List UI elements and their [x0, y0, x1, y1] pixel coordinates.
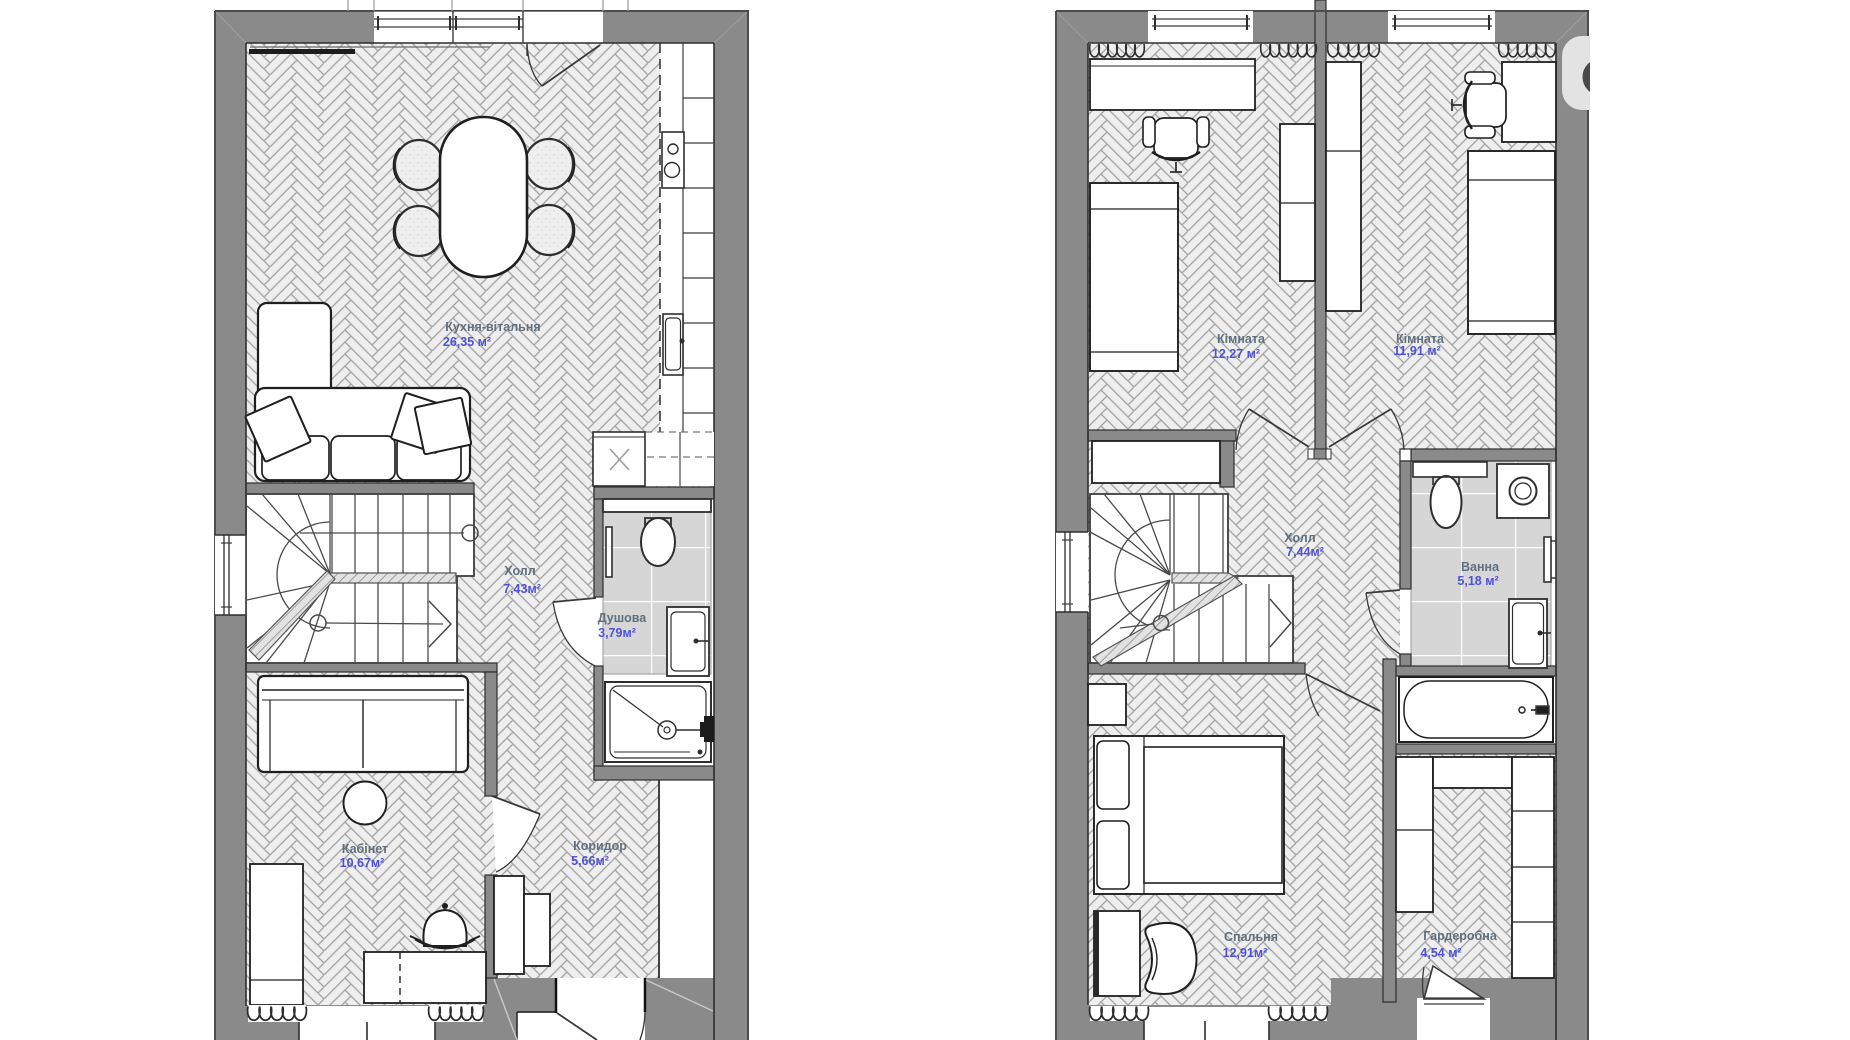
svg-text:Душова: Душова [598, 611, 648, 625]
svg-text:7,43м²: 7,43м² [503, 582, 541, 596]
svg-text:5,18 м²: 5,18 м² [1457, 574, 1498, 588]
svg-text:Гардеробна: Гардеробна [1423, 929, 1498, 943]
svg-text:5,66м²: 5,66м² [571, 854, 609, 868]
svg-text:Холл: Холл [1284, 531, 1315, 545]
svg-text:11,91 м²: 11,91 м² [1393, 344, 1440, 358]
svg-text:Кабінет: Кабінет [342, 842, 388, 856]
svg-text:26,35 м²: 26,35 м² [443, 335, 491, 349]
svg-text:12,27 м²: 12,27 м² [1212, 347, 1260, 361]
svg-text:10,67м²: 10,67м² [340, 856, 385, 870]
svg-text:Спальня: Спальня [1224, 930, 1278, 944]
svg-text:3,79м²: 3,79м² [598, 626, 636, 640]
svg-text:4,54 м²: 4,54 м² [1420, 946, 1461, 960]
svg-text:Кімната: Кімната [1217, 332, 1266, 346]
svg-text:Коридор: Коридор [573, 839, 627, 853]
svg-text:Ванна: Ванна [1461, 560, 1500, 574]
svg-text:7,44м²: 7,44м² [1286, 545, 1324, 559]
svg-text:Кухня-вітальня: Кухня-вітальня [445, 320, 540, 334]
svg-text:12,91м²: 12,91м² [1223, 946, 1268, 960]
svg-text:Холл: Холл [504, 564, 535, 578]
